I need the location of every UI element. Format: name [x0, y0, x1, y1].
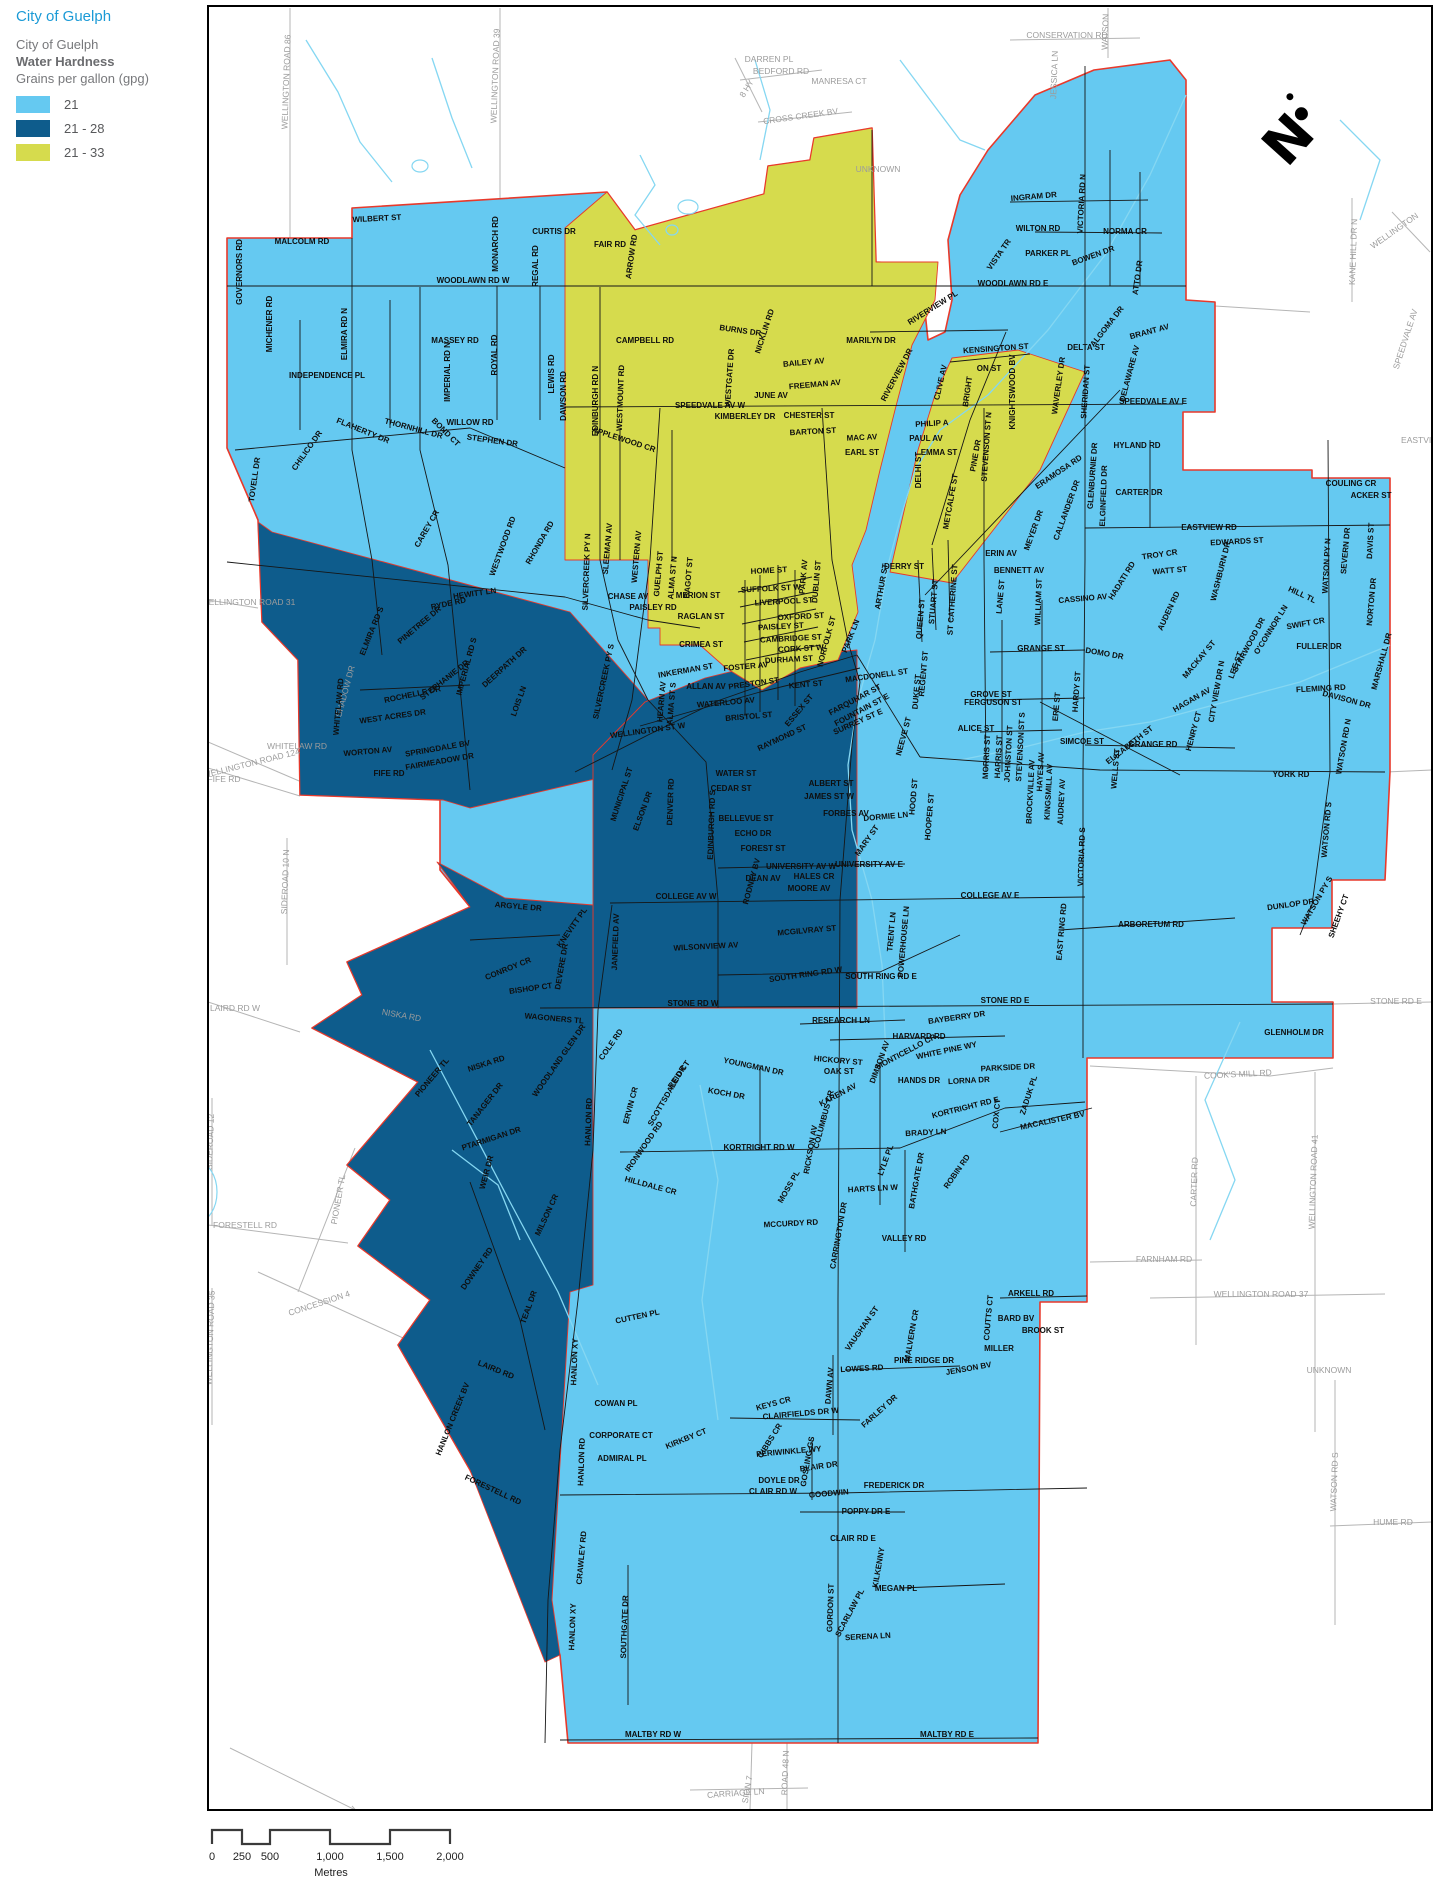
- street-label: BELLEVUE ST: [718, 814, 773, 823]
- scale-tick: 1,500: [376, 1851, 404, 1863]
- street-label: FARNHAM RD: [1136, 1254, 1192, 1264]
- street-label: STONE RD E: [981, 996, 1030, 1005]
- street-label: UNKNOWN: [1307, 1365, 1352, 1375]
- street-label: WILTON RD: [1016, 224, 1061, 233]
- street-label: ECHO DR: [735, 829, 772, 838]
- street-label: MONARCH RD: [491, 216, 500, 272]
- street-label: INDEPENDENCE PL: [289, 371, 365, 380]
- street-label: ACKER ST: [1351, 491, 1392, 500]
- street-label: EARL ST: [845, 448, 879, 457]
- street-label: FOREST ST: [741, 844, 786, 853]
- street-label: SPEEDVALE AV E: [1119, 397, 1188, 406]
- street-label: KIMBERLEY DR: [715, 412, 776, 421]
- street-label: PAUL AV: [909, 434, 943, 443]
- street-label: HOME ST: [750, 565, 787, 576]
- street-label: EMMA ST: [921, 448, 958, 457]
- street-label: CAMPBELL RD: [616, 336, 674, 345]
- street-label: UNKNOWN: [856, 164, 901, 174]
- street-label: FORESTELL RD: [213, 1220, 277, 1230]
- street-label: WATSON RD S: [1328, 1452, 1340, 1512]
- street-label: DAVIS ST: [1365, 522, 1376, 559]
- street-label: WOODLAWN RD W: [437, 276, 510, 285]
- street-label: LEWIS RD: [547, 354, 556, 393]
- street-label: CRIMEA ST: [679, 640, 723, 649]
- street-label: ARKELL RD: [1008, 1289, 1054, 1298]
- water-hardness-map: WELLINGTON ROAD 86WELLINGTON ROAD 39CONS…: [0, 0, 1438, 1886]
- street-label: COWAN PL: [594, 1399, 637, 1408]
- street-label: MALTBY RD W: [625, 1730, 682, 1739]
- scale-tick: 500: [261, 1851, 279, 1863]
- street-label: STONE RD E: [1370, 996, 1422, 1006]
- street-label: KNIGHTSWOOD BV: [1008, 354, 1017, 430]
- street-label: ALICE ST: [958, 724, 995, 733]
- street-label: MAC AV: [846, 432, 878, 443]
- street-label: CHESTER ST: [784, 411, 835, 420]
- street-label: EASTVIEW RD: [1181, 523, 1237, 532]
- street-label: PAISLEY RD: [629, 603, 676, 612]
- street-label: MOORE AV: [788, 884, 831, 893]
- street-label: JAMES ST W: [804, 792, 854, 801]
- street-label: JUNE AV: [754, 391, 788, 400]
- street-label: WILLOW RD: [446, 418, 493, 427]
- street-label: FIFE RD: [207, 774, 240, 784]
- street-label: MICHENER RD: [265, 296, 274, 353]
- pond: [116, 1016, 188, 1120]
- street-label: HANLON XY: [567, 1603, 578, 1651]
- street-label: COLLEGE AV W: [656, 892, 717, 901]
- street-label: KORTRIGHT RD W: [723, 1143, 795, 1152]
- street-label: CORPORATE CT: [589, 1431, 653, 1440]
- street-label: CHASE AV: [608, 592, 649, 601]
- street-label: WILLIAM ST: [1033, 578, 1044, 625]
- street-label: DELHI ST: [914, 452, 923, 489]
- street-label: HANLON RD: [583, 1098, 594, 1147]
- street-label: HANDS DR: [898, 1076, 940, 1085]
- street-label: OAK ST: [824, 1067, 854, 1076]
- street-label: DELTA ST: [1067, 343, 1105, 352]
- street-label: LAIRD RD W: [210, 1003, 260, 1013]
- street-label: WELLINGTON ROAD 37: [1214, 1289, 1309, 1299]
- street-label: SIDEROAD 12: [204, 1113, 216, 1170]
- street-label: PARKER PL: [1025, 249, 1071, 258]
- street-label: IMPERIAL RD N: [443, 342, 452, 402]
- street-label: BROOK ST: [1022, 1326, 1064, 1335]
- street-label: DAWSON RD: [559, 371, 568, 421]
- street-label: GORDON ST: [825, 1583, 836, 1632]
- street-label: FAIR RD: [594, 240, 626, 249]
- street-label: RESEARCH LN: [812, 1016, 870, 1025]
- street-label: MASSEY RD: [431, 336, 479, 345]
- street-label: STONE RD W: [668, 999, 719, 1008]
- street-label: FERGUSON ST: [964, 698, 1022, 707]
- street-label: UNIVERSITY AV E: [835, 860, 904, 869]
- street-label: GLENHOLM DR: [1264, 1028, 1324, 1037]
- street-label: PHILIP A: [915, 418, 949, 429]
- street-label: HYLAND RD: [1113, 441, 1160, 450]
- street-label: MEGAN PL: [875, 1584, 917, 1593]
- map-layers: WELLINGTON ROAD 86WELLINGTON ROAD 39CONS…: [116, 6, 1438, 1862]
- street-label: NORMA CR: [1103, 227, 1147, 236]
- street-label: POPPY DR E: [842, 1507, 891, 1516]
- street-label: WATSON: [1099, 14, 1110, 51]
- street-label: ADMIRAL PL: [597, 1454, 646, 1463]
- street-label: ARBORETUM RD: [1118, 920, 1184, 929]
- street-label: JESSICA LN: [1048, 51, 1060, 100]
- street-label: VALLEY RD: [882, 1234, 927, 1243]
- street-label: FREDERICK DR: [864, 1481, 925, 1490]
- street-label: ROAD 48 N: [779, 1750, 791, 1795]
- street-label: 20 N: [368, 1825, 386, 1845]
- street-label: BARD BV: [998, 1314, 1035, 1323]
- street-label: ON ST: [977, 364, 1002, 373]
- scale-tick: 250: [233, 1851, 251, 1863]
- street-label: MANRESA CT: [811, 76, 866, 86]
- street-label: REGAL RD: [531, 245, 540, 287]
- street-label: DOYLE DR: [758, 1476, 800, 1485]
- street-label: ALBERT ST: [809, 779, 854, 788]
- street-label: CLAIR RD E: [830, 1534, 876, 1543]
- street-label: ALLAN AV: [686, 682, 726, 691]
- street-label: MALTBY RD E: [920, 1730, 975, 1739]
- street-label: WELLINGTON ROAD 31: [201, 597, 296, 607]
- street-label: WOODLAWN RD E: [978, 279, 1049, 288]
- street-label: PINE RIDGE DR: [894, 1356, 954, 1365]
- street-label: ROYAL RD: [490, 334, 499, 375]
- street-label: HANLON XY: [569, 1338, 580, 1386]
- street-label: DARREN PL: [745, 54, 794, 64]
- street-label: UNIVERSITY AV W: [766, 862, 837, 871]
- scale-unit: Metres: [314, 1867, 348, 1879]
- street-label: DERRY ST: [884, 562, 924, 571]
- street-label: HALES CR: [794, 872, 835, 881]
- scale-tick: 1,000: [316, 1851, 344, 1863]
- street-label: CARTER RD: [1188, 1157, 1200, 1207]
- street-label: ERIN AV: [985, 549, 1017, 558]
- street-label: WATER ST: [716, 769, 757, 778]
- street-label: SIMCOE ST: [1060, 737, 1104, 746]
- street-label: FULLER DR: [1296, 642, 1342, 651]
- street-label: SPEEDVALE AV W: [675, 401, 746, 410]
- street-label: HUME RD: [1373, 1517, 1413, 1527]
- street-label: CURTIS DR: [532, 227, 576, 236]
- street-label: CONSERVATION RD: [1026, 30, 1107, 40]
- street-label: BEDFORD RD: [753, 66, 809, 76]
- street-label: DENVER RD: [665, 778, 676, 826]
- street-label: CARTER DR: [1115, 488, 1162, 497]
- street-label: MILLER: [984, 1344, 1014, 1353]
- street-label: SOUTH RING RD E: [845, 972, 917, 981]
- street-label: ELMIRA RD N: [340, 308, 349, 360]
- street-label: RAGLAN ST: [678, 612, 725, 621]
- street-label: FIFE RD: [373, 769, 404, 778]
- scale-tick: 0: [209, 1851, 215, 1863]
- scale-bar: 02505001,0001,5002,000Metres: [209, 1830, 464, 1879]
- street-label: MALCOLM RD: [275, 237, 330, 246]
- street-label: COLLEGE AV E: [961, 891, 1020, 900]
- street-label: YORK RD: [1273, 770, 1310, 779]
- street-label: BENNETT AV: [994, 566, 1045, 575]
- street-label: CLAIR RD W: [749, 1487, 797, 1496]
- street-label: COULING CR: [1326, 479, 1377, 488]
- street-label: MARILYN DR: [846, 336, 896, 345]
- street-label: GOVERNORS RD: [235, 239, 244, 305]
- street-label: HANLON RD: [576, 1438, 587, 1487]
- scale-tick: 2,000: [436, 1851, 464, 1863]
- street-label: GRANGE ST: [1017, 644, 1065, 653]
